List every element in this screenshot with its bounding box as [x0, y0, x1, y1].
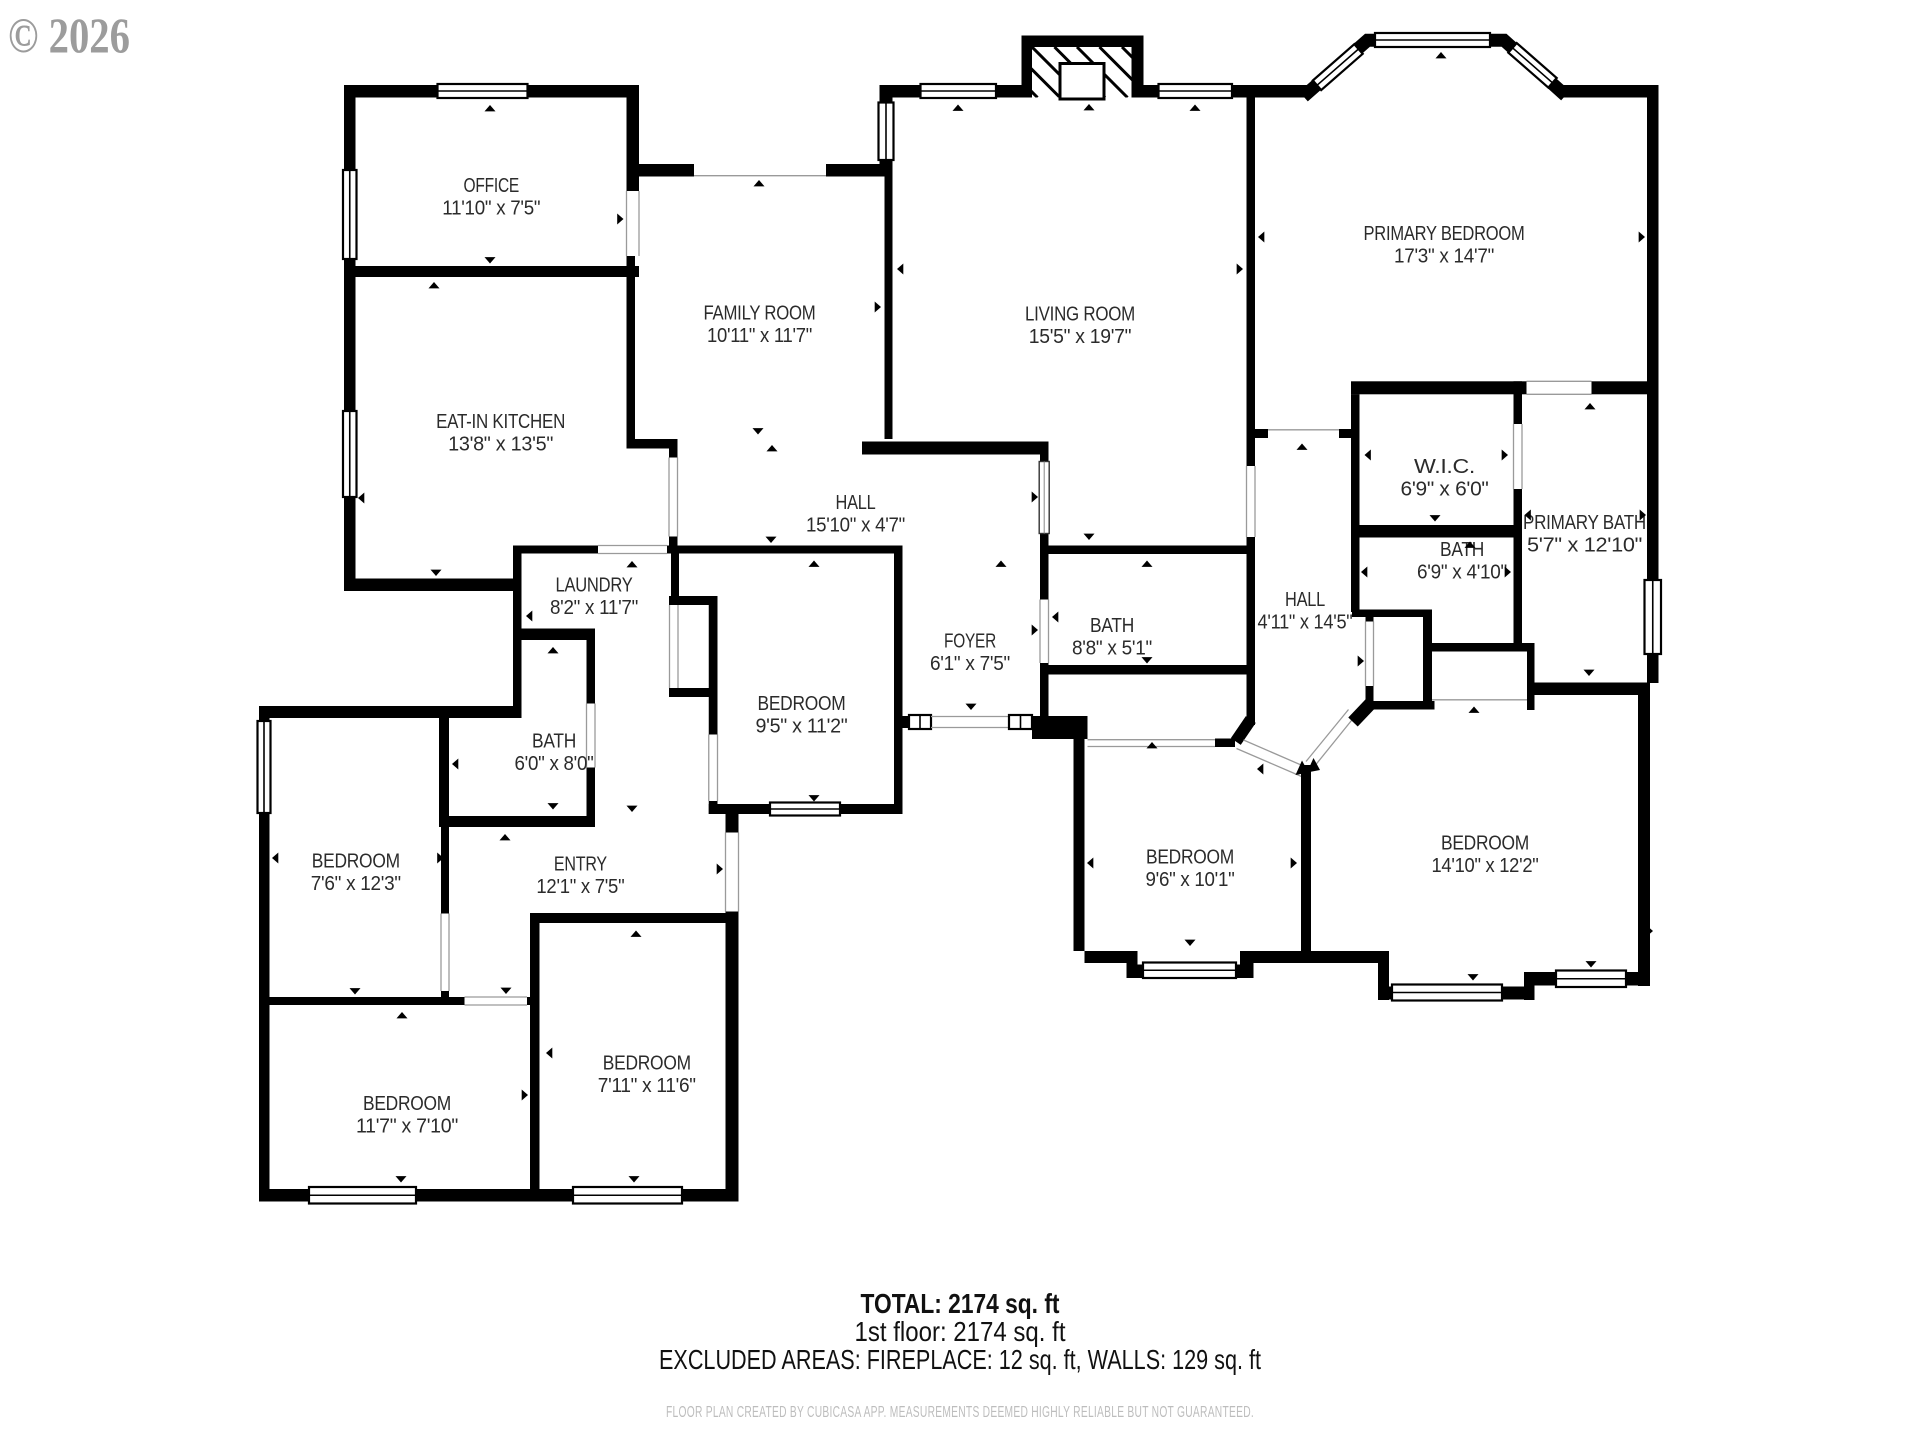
svg-text:EAT-IN KITCHEN: EAT-IN KITCHEN: [436, 410, 565, 433]
svg-text:FLOOR PLAN CREATED BY CUBICASA: FLOOR PLAN CREATED BY CUBICASA APP. MEAS…: [666, 1404, 1254, 1421]
svg-text:© 2026: © 2026: [8, 7, 130, 63]
svg-text:15'10" x 4'7": 15'10" x 4'7": [806, 513, 905, 536]
svg-text:LIVING ROOM: LIVING ROOM: [1025, 303, 1135, 326]
svg-text:9'5" x 11'2": 9'5" x 11'2": [756, 714, 848, 737]
svg-text:BATH: BATH: [1090, 614, 1134, 637]
svg-text:EXCLUDED AREAS: FIREPLACE: 12: EXCLUDED AREAS: FIREPLACE: 12 sq. ft, WA…: [659, 1344, 1261, 1375]
svg-text:13'8" x 13'5": 13'8" x 13'5": [448, 432, 553, 455]
svg-text:7'6" x 12'3": 7'6" x 12'3": [311, 872, 401, 895]
svg-text:TOTAL: 2174 sq. ft: TOTAL: 2174 sq. ft: [861, 1288, 1060, 1319]
svg-text:14'10" x 12'2": 14'10" x 12'2": [1432, 854, 1539, 877]
svg-text:BEDROOM: BEDROOM: [1441, 832, 1529, 855]
svg-text:6'0" x 8'0": 6'0" x 8'0": [515, 752, 594, 775]
svg-text:ENTRY: ENTRY: [554, 853, 607, 876]
svg-text:15'5" x 19'7": 15'5" x 19'7": [1029, 325, 1132, 348]
svg-text:6'9" x 6'0": 6'9" x 6'0": [1401, 477, 1489, 500]
svg-text:BATH: BATH: [1440, 538, 1484, 561]
svg-text:7'11" x 11'6": 7'11" x 11'6": [598, 1074, 696, 1097]
svg-text:11'7" x 7'10": 11'7" x 7'10": [356, 1114, 458, 1137]
svg-text:BEDROOM: BEDROOM: [363, 1092, 451, 1115]
svg-text:FAMILY ROOM: FAMILY ROOM: [704, 302, 816, 325]
svg-text:FOYER: FOYER: [944, 630, 996, 653]
svg-text:11'10" x 7'5": 11'10" x 7'5": [442, 196, 540, 219]
svg-text:BEDROOM: BEDROOM: [1146, 846, 1234, 869]
svg-text:OFFICE: OFFICE: [464, 174, 520, 197]
svg-text:BEDROOM: BEDROOM: [312, 850, 400, 873]
svg-text:17'3" x 14'7": 17'3" x 14'7": [1394, 244, 1494, 267]
svg-text:BEDROOM: BEDROOM: [758, 692, 846, 715]
svg-text:10'11" x 11'7": 10'11" x 11'7": [707, 324, 812, 347]
svg-text:HALL: HALL: [836, 491, 876, 514]
svg-text:HALL: HALL: [1285, 588, 1325, 611]
svg-text:W.I.C.: W.I.C.: [1414, 455, 1475, 478]
svg-text:BEDROOM: BEDROOM: [603, 1052, 691, 1075]
svg-text:4'11" x 14'5": 4'11" x 14'5": [1258, 610, 1353, 633]
svg-text:8'2" x 11'7": 8'2" x 11'7": [550, 596, 638, 619]
svg-text:LAUNDRY: LAUNDRY: [556, 574, 634, 597]
svg-text:PRIMARY BATH: PRIMARY BATH: [1523, 511, 1646, 534]
svg-text:9'6" x 10'1": 9'6" x 10'1": [1146, 868, 1235, 891]
svg-text:BATH: BATH: [532, 730, 576, 753]
svg-text:PRIMARY BEDROOM: PRIMARY BEDROOM: [1364, 222, 1525, 245]
svg-text:8'8" x 5'1": 8'8" x 5'1": [1072, 636, 1152, 659]
svg-text:1st floor: 2174 sq. ft: 1st floor: 2174 sq. ft: [855, 1316, 1066, 1347]
svg-text:12'1" x 7'5": 12'1" x 7'5": [536, 875, 624, 898]
svg-text:5'7" x 12'10": 5'7" x 12'10": [1527, 533, 1642, 556]
svg-text:6'1" x 7'5": 6'1" x 7'5": [930, 652, 1010, 675]
svg-text:6'9" x 4'10": 6'9" x 4'10": [1417, 560, 1507, 583]
